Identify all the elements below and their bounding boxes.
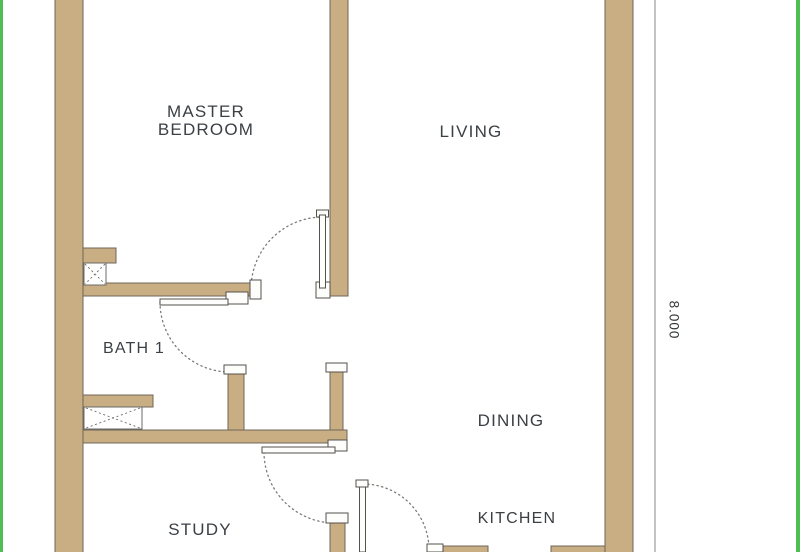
room-label-kitchen: KITCHEN (478, 510, 557, 528)
bath-stub-jamb (224, 365, 246, 374)
wall-outer-left (55, 0, 83, 552)
kitchen-door-jamb (427, 544, 443, 552)
bath-door-leaf (160, 299, 228, 305)
wall-bath-niche-top (83, 395, 153, 407)
study-stub-jamb (326, 513, 348, 523)
wall-bath-study (83, 430, 347, 443)
study-door-leaf (262, 447, 335, 453)
kitchen-door-cap (356, 480, 368, 487)
study-door-arc (264, 452, 335, 523)
kitchen-door-arc (363, 484, 429, 550)
wall-stub-hall-dining (330, 368, 343, 430)
door-swing-arcs (160, 217, 429, 550)
floor-plan-page: MASTER BEDROOM LIVING BATH 1 DINING STUD… (0, 0, 800, 552)
master-bedroom-door-jamb (250, 280, 261, 299)
room-label-dining: DINING (478, 412, 545, 430)
room-label-bath-1: BATH 1 (103, 340, 165, 358)
right-crop-guide-line (796, 0, 800, 552)
wall-stub-study-kitchen (330, 523, 345, 552)
room-label-master-bedroom: MASTER BEDROOM (141, 103, 271, 139)
wall-stub-bath-hall (228, 368, 244, 430)
wall-outer-right (605, 0, 633, 552)
kitchen-door-leaf (360, 487, 366, 552)
master-bedroom-door-arc (251, 217, 323, 289)
wall-bedroom-living (330, 0, 348, 296)
left-crop-guide-line (0, 0, 3, 552)
walls-group (55, 0, 633, 552)
doors-group (160, 210, 443, 552)
room-label-study: STUDY (168, 521, 232, 539)
wall-bottom-a (443, 546, 488, 552)
dimension-label: 8.000 (667, 301, 682, 340)
wall-shaft-top (83, 248, 116, 263)
bath-door-arc (160, 302, 230, 372)
wall-bottom-b (551, 546, 605, 552)
room-label-living: LIVING (440, 123, 503, 141)
bath-door-hinge (226, 292, 248, 304)
master-bedroom-door-leaf (320, 215, 326, 288)
hall-stub-jamb (326, 363, 347, 372)
floor-plan-drawing (0, 0, 800, 552)
